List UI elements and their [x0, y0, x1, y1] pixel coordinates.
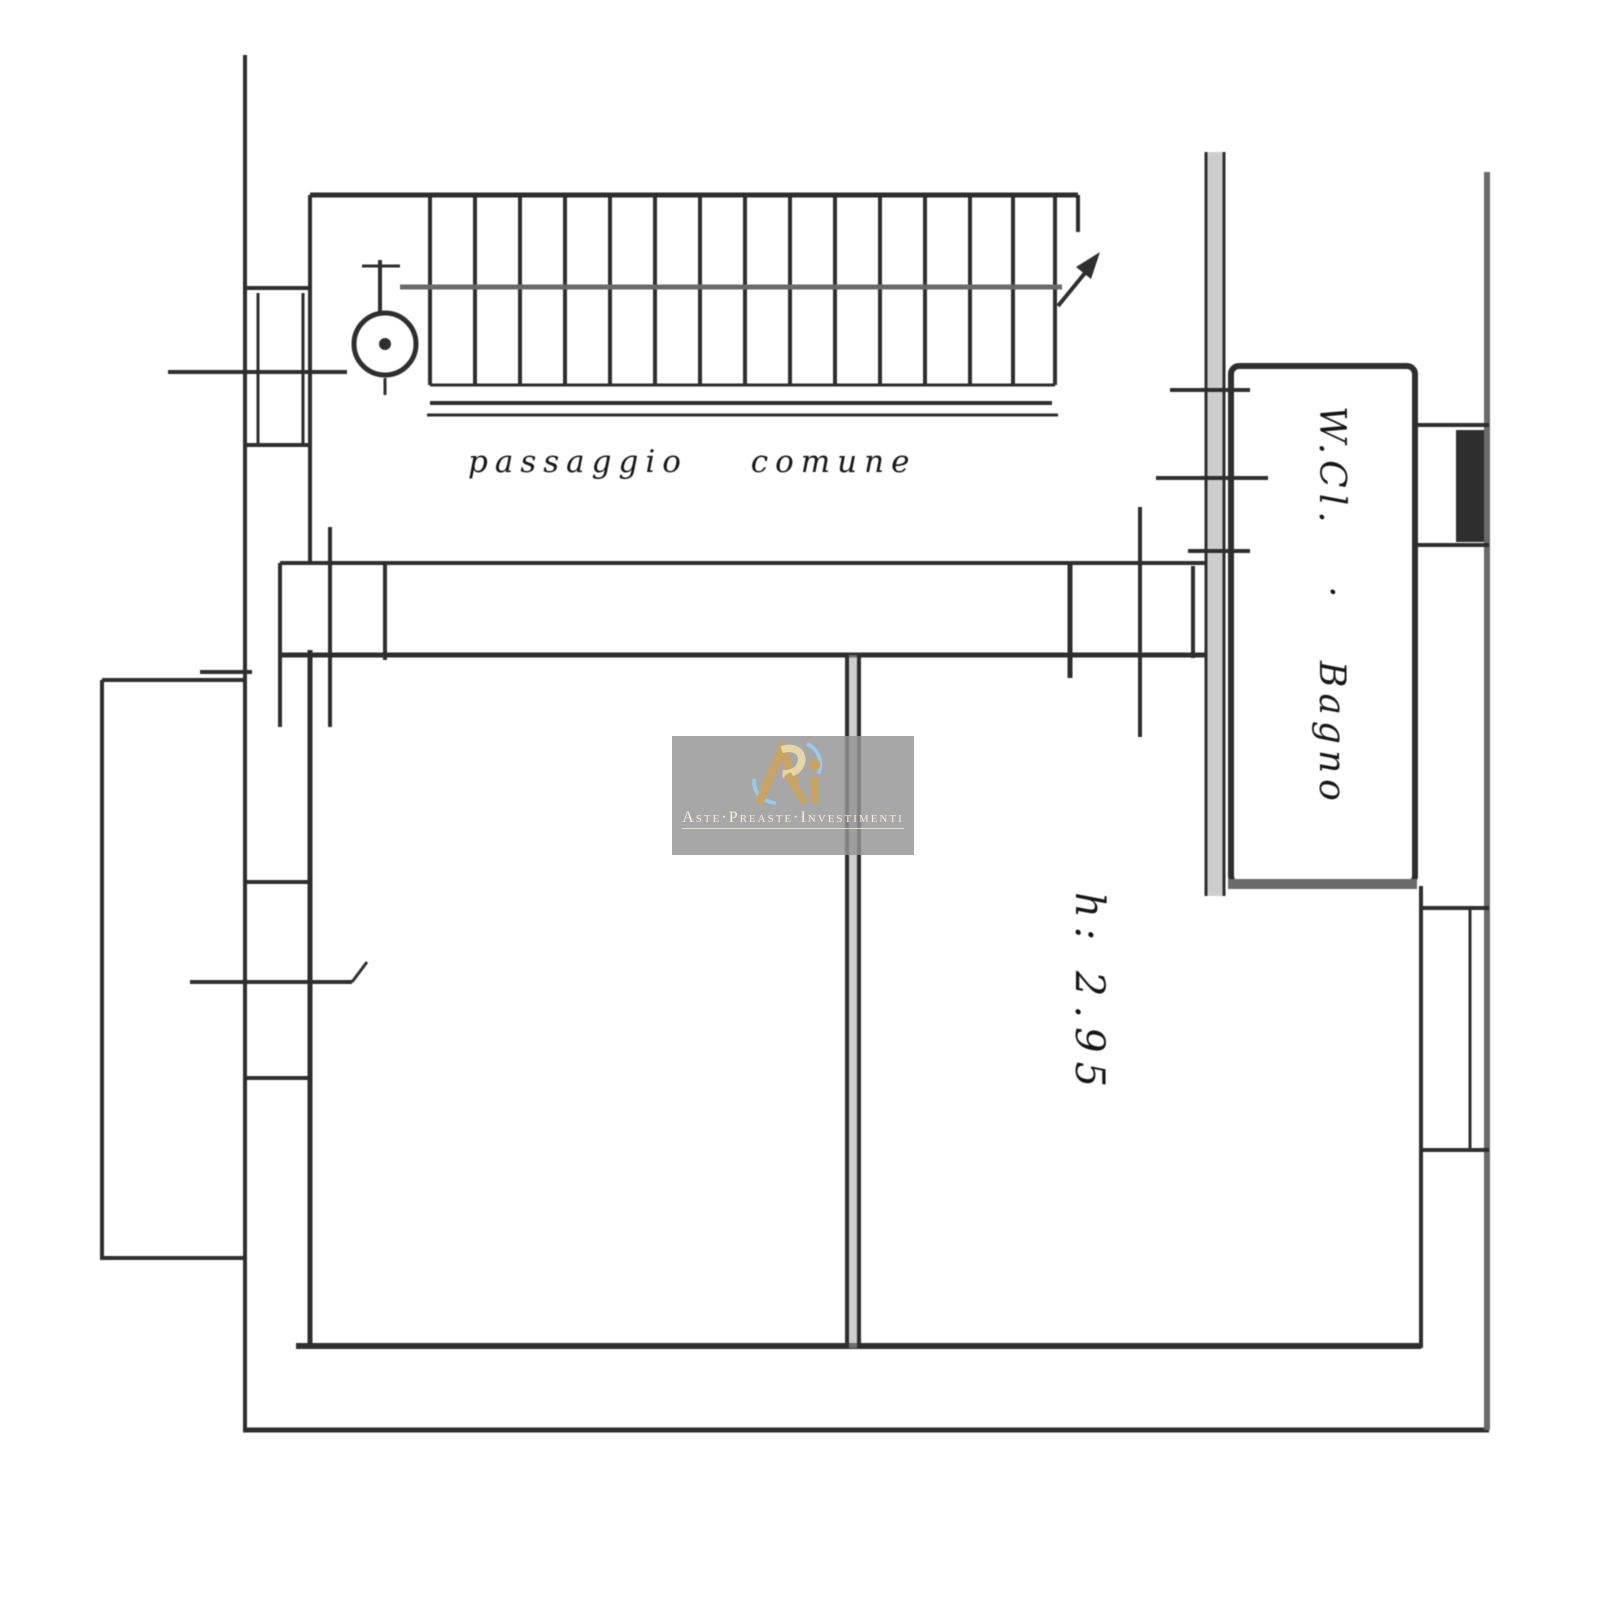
- room-height-label: h: 2.95: [1066, 892, 1112, 1096]
- balcony: [102, 680, 245, 1260]
- watermark-caption: Aste·Preaste·Investimenti: [682, 809, 903, 829]
- floorplan-page: passaggio comune h: 2.95 W.Cl. · Bagno A…: [0, 0, 1600, 1600]
- corridor-walls: [200, 507, 1205, 737]
- newel-post-icon: [354, 260, 416, 395]
- right-window-upper: [1415, 425, 1489, 545]
- staircase: [310, 195, 1100, 562]
- agency-watermark: Aste·Preaste·Investimenti: [672, 736, 914, 855]
- stair-treads: [430, 197, 1055, 385]
- apri-monogram-icon: [749, 741, 837, 807]
- left-window-upper: [168, 288, 347, 445]
- left-door: [190, 882, 367, 1078]
- bathroom-label: W.Cl. · Bagno: [1311, 406, 1352, 807]
- right-window-lower: [1421, 908, 1489, 1150]
- stair-direction-arrow-icon: [1058, 252, 1100, 306]
- bathroom-walls: [1156, 152, 1417, 896]
- corridor-label: passaggio comune: [468, 444, 916, 480]
